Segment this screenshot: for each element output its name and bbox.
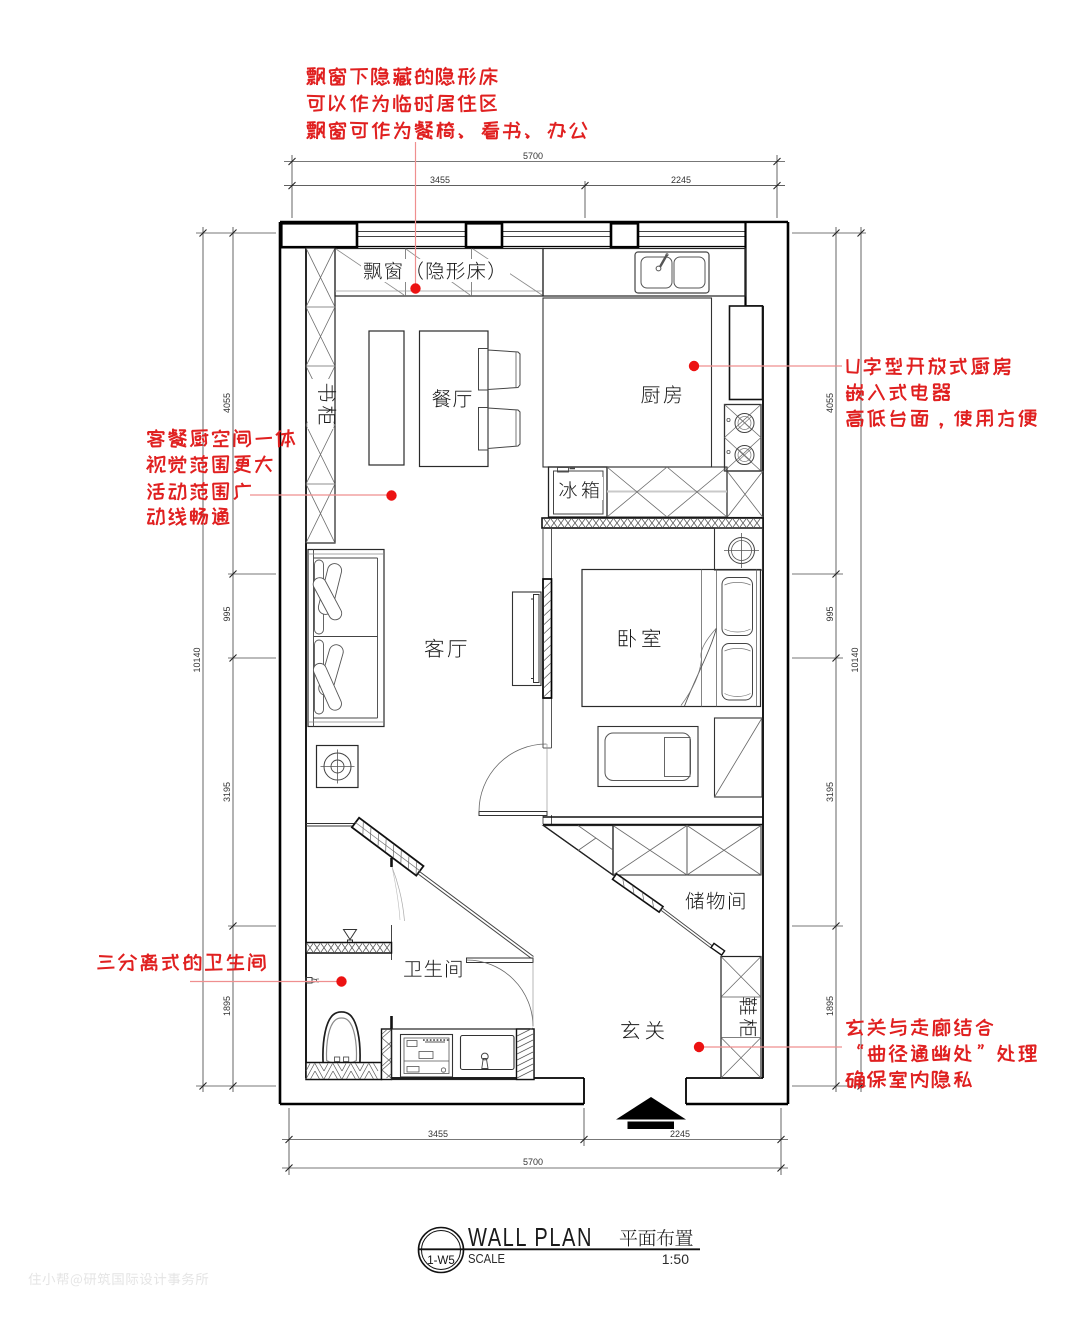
svg-text:10140: 10140: [850, 647, 860, 672]
svg-text:995: 995: [825, 606, 835, 621]
svg-text:1-W5: 1-W5: [427, 1255, 454, 1267]
svg-text:3195: 3195: [825, 782, 835, 802]
svg-text:3195: 3195: [222, 782, 232, 802]
svg-text:5700: 5700: [523, 151, 543, 161]
svg-text:1895: 1895: [825, 996, 835, 1016]
svg-text:4055: 4055: [222, 393, 232, 413]
svg-text:3455: 3455: [428, 1129, 448, 1139]
svg-text:2245: 2245: [671, 175, 691, 185]
svg-text:1:50: 1:50: [662, 1251, 689, 1267]
svg-text:5700: 5700: [523, 1157, 543, 1167]
svg-text:3455: 3455: [430, 175, 450, 185]
svg-text:995: 995: [222, 606, 232, 621]
svg-text:1895: 1895: [222, 996, 232, 1016]
svg-text:10140: 10140: [192, 647, 202, 672]
svg-text:2245: 2245: [670, 1129, 690, 1139]
svg-text:SCALE: SCALE: [468, 1252, 505, 1266]
svg-text:WALL PLAN: WALL PLAN: [468, 1222, 593, 1252]
svg-text:4055: 4055: [825, 393, 835, 413]
